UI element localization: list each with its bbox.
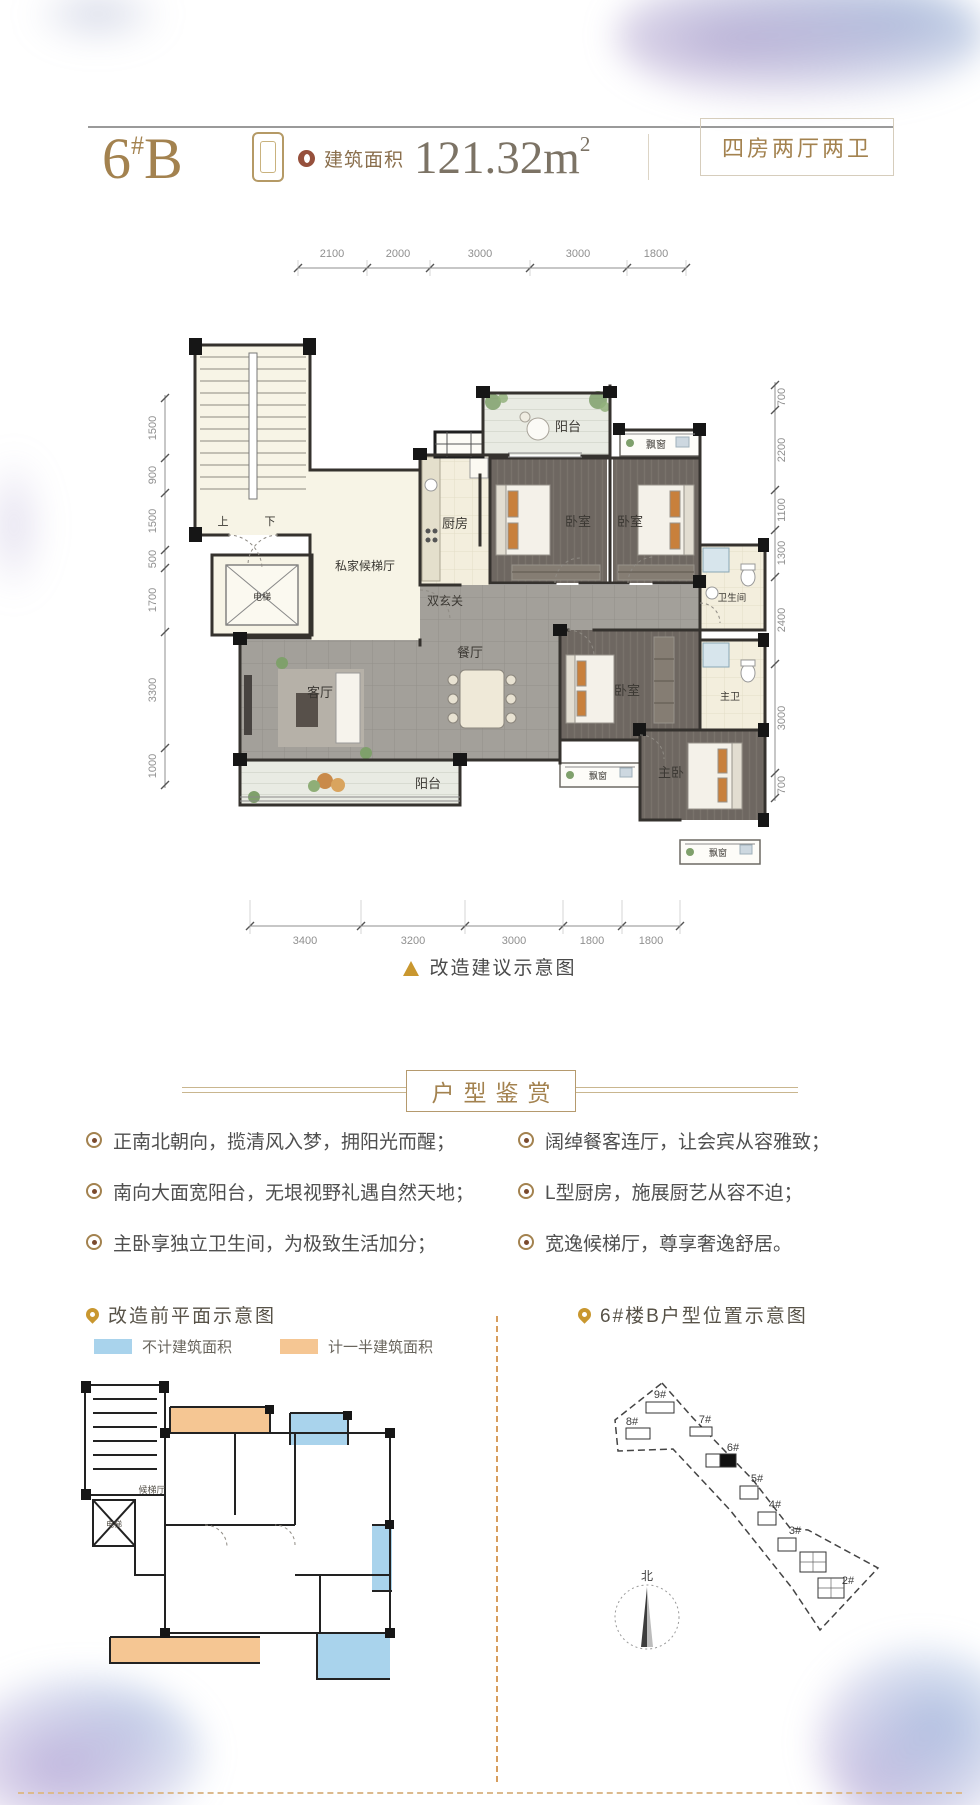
bullet-icon bbox=[518, 1183, 534, 1199]
dimension-left: 1500 900 1500 500 1700 3300 1000 bbox=[147, 394, 169, 789]
point-item: 阔绰餐客连厅，让会宾从容雅致； bbox=[518, 1128, 968, 1152]
bullet-icon bbox=[86, 1132, 102, 1148]
point-text: 南向大面宽阳台，无垠视野礼遇自然天地； bbox=[113, 1178, 474, 1205]
building-label: 9# bbox=[654, 1389, 667, 1401]
column-divider-dashed bbox=[496, 1316, 498, 1782]
point-text: 正南北朝向，揽清风入梦，拥阳光而醒； bbox=[113, 1127, 455, 1154]
dim-label: 2200 bbox=[776, 438, 788, 462]
point-item: 主卧享独立卫生间，为极致生活加分； bbox=[86, 1230, 496, 1254]
title-rule-right bbox=[574, 1087, 798, 1093]
legend-item: 计一半建筑面积 bbox=[280, 1336, 433, 1357]
dim-label: 2100 bbox=[320, 248, 344, 260]
point-item: 宽逸候梯厅，尊享奢逸舒居。 bbox=[518, 1230, 968, 1254]
dim-label: 1800 bbox=[580, 935, 604, 945]
pin-icon bbox=[575, 1305, 593, 1323]
location-map-header: 6#楼B户型位置示意图 bbox=[578, 1301, 808, 1328]
room-label-master-bath: 主卫 bbox=[720, 691, 740, 703]
unit-number: 6 bbox=[102, 126, 131, 191]
unit-hash: # bbox=[131, 131, 144, 160]
dimension-top: 2100 2000 3000 3000 1800 bbox=[294, 248, 690, 276]
room-label-elevator: 电梯 bbox=[253, 591, 271, 602]
watercolor-left-mid bbox=[0, 450, 46, 600]
point-item: L型厨房，施展厨艺从容不迫； bbox=[518, 1179, 968, 1203]
pin-icon bbox=[83, 1305, 101, 1323]
room-label-kitchen: 厨房 bbox=[442, 516, 468, 531]
location-map-drawing: 9# 8# 7# 6# 5# 4# 3# 2# 北 bbox=[500, 1340, 940, 1685]
unit-title: 6#B bbox=[102, 130, 183, 188]
room-label-private-hall: 私家候梯厅 bbox=[335, 558, 395, 573]
dim-label: 3000 bbox=[468, 248, 492, 260]
area-badge-icon bbox=[298, 150, 315, 167]
legend-item: 不计建筑面积 bbox=[94, 1336, 232, 1357]
room-label-bay-top: 飘窗 bbox=[646, 438, 666, 451]
watercolor-top-right bbox=[615, 0, 980, 105]
building-label: 5# bbox=[751, 1473, 764, 1485]
floorplan-drawing: 2100 2000 3000 3000 1800 1500 900 1500 5… bbox=[130, 245, 790, 945]
before-label-elevator: 电梯 bbox=[106, 1519, 122, 1529]
dim-label: 3400 bbox=[293, 935, 317, 945]
site-buildings bbox=[626, 1402, 844, 1598]
point-text: 宽逸候梯厅，尊享奢逸舒居。 bbox=[545, 1229, 792, 1256]
room-label-master-bedroom: 主卧 bbox=[658, 765, 684, 780]
caption-flame-icon bbox=[403, 961, 419, 976]
dim-label: 3200 bbox=[401, 935, 425, 945]
room-label-bedroom3: 卧室 bbox=[614, 683, 640, 698]
legend-swatch-orange bbox=[280, 1339, 318, 1354]
section-title: 户型鉴赏 bbox=[406, 1070, 576, 1112]
point-item: 南向大面宽阳台，无垠视野礼遇自然天地； bbox=[86, 1179, 496, 1203]
area-label: 建筑面积 bbox=[324, 145, 404, 172]
dim-label: 700 bbox=[776, 388, 788, 406]
points-right-column: 阔绰餐客连厅，让会宾从容雅致； L型厨房，施展厨艺从容不迫； 宽逸候梯厅，尊享奢… bbox=[518, 1128, 968, 1281]
before-color-areas bbox=[110, 1407, 392, 1679]
stair-label-down: 下 bbox=[265, 516, 276, 528]
dim-label: 900 bbox=[147, 466, 159, 484]
points-left-column: 正南北朝向，揽清风入梦，拥阳光而醒； 南向大面宽阳台，无垠视野礼遇自然天地； 主… bbox=[86, 1128, 496, 1281]
legend-label: 计一半建筑面积 bbox=[328, 1336, 433, 1357]
bullet-icon bbox=[86, 1183, 102, 1199]
building-label: 6# bbox=[727, 1442, 740, 1454]
dim-label: 2000 bbox=[386, 248, 410, 260]
room-label-bathroom: 卫生间 bbox=[718, 592, 747, 604]
dim-label: 500 bbox=[147, 550, 159, 568]
dim-label: 1300 bbox=[776, 541, 788, 565]
area-group: 建筑面积 121.32m2 bbox=[298, 128, 590, 188]
before-plan-drawing: 候梯厅 电梯 bbox=[55, 1375, 440, 1705]
dim-label: 1700 bbox=[147, 588, 159, 612]
before-door-arcs bbox=[205, 1525, 295, 1547]
legend-label: 不计建筑面积 bbox=[142, 1336, 232, 1357]
dim-label: 1500 bbox=[147, 416, 159, 440]
header-divider bbox=[648, 134, 649, 180]
dim-label: 3300 bbox=[147, 678, 159, 702]
unit-letter: B bbox=[144, 126, 183, 191]
flyer-page: 6#B 建筑面积 121.32m2 四房两厅两卫 bbox=[0, 0, 980, 1805]
before-plan-title: 改造前平面示意图 bbox=[108, 1301, 276, 1328]
dimension-right: 700 2200 1100 1300 2400 3000 700 bbox=[771, 381, 788, 802]
building-label: 8# bbox=[626, 1416, 639, 1428]
compass: 北 bbox=[615, 1569, 679, 1649]
point-text: 主卧享独立卫生间，为极致生活加分； bbox=[113, 1229, 436, 1256]
room-label-bay-mid: 飘窗 bbox=[589, 770, 607, 781]
location-map-title: 6#楼B户型位置示意图 bbox=[600, 1301, 808, 1328]
area-number: 121.32m bbox=[414, 132, 580, 184]
building-label: 3# bbox=[789, 1525, 802, 1537]
building-label: 7# bbox=[699, 1414, 712, 1426]
dimension-bottom: 3400 3200 3000 1800 1800 bbox=[246, 900, 684, 945]
footer-divider-dashed bbox=[18, 1792, 962, 1794]
dim-label: 1500 bbox=[147, 509, 159, 533]
bullet-icon bbox=[518, 1234, 534, 1250]
area-superscript: 2 bbox=[580, 132, 591, 156]
room-label-bay-master: 飘窗 bbox=[709, 847, 727, 858]
seal-icon bbox=[252, 132, 284, 182]
room-label-foyer: 双玄关 bbox=[427, 593, 463, 608]
dim-label: 1800 bbox=[644, 248, 668, 260]
plan-caption-text: 改造建议示意图 bbox=[429, 958, 576, 979]
room-label-bedroom2: 卧室 bbox=[617, 514, 643, 529]
dim-label: 1000 bbox=[147, 754, 159, 778]
room-label-bedroom1: 卧室 bbox=[565, 514, 591, 529]
room-label-living: 客厅 bbox=[307, 685, 333, 700]
point-text: 阔绰餐客连厅，让会宾从容雅致； bbox=[545, 1127, 830, 1154]
area-value: 121.32m2 bbox=[414, 134, 590, 182]
highlighted-unit-b bbox=[720, 1454, 736, 1467]
bullet-icon bbox=[86, 1234, 102, 1250]
dim-label: 3000 bbox=[502, 935, 526, 945]
section-appreciation-header: 户型鉴赏 bbox=[0, 1070, 980, 1112]
dim-label: 2400 bbox=[776, 608, 788, 632]
point-item: 正南北朝向，揽清风入梦，拥阳光而醒； bbox=[86, 1128, 496, 1152]
watercolor-top-left bbox=[28, 0, 168, 46]
title-rule-left bbox=[182, 1087, 406, 1093]
room-label-dining: 餐厅 bbox=[457, 645, 483, 660]
before-label-hall: 候梯厅 bbox=[138, 1484, 165, 1495]
private-hall-floor bbox=[310, 470, 420, 640]
layout-tag: 四房两厅两卫 bbox=[700, 118, 894, 176]
before-plan-header: 改造前平面示意图 bbox=[86, 1301, 276, 1328]
room-label-balcony-top: 阳台 bbox=[555, 419, 581, 434]
compass-north-label: 北 bbox=[641, 1569, 653, 1583]
dim-label: 1800 bbox=[639, 935, 663, 945]
stair-label-up: 上 bbox=[218, 515, 229, 528]
seal-icon-inner bbox=[260, 141, 276, 173]
room-label-balcony-bottom: 阳台 bbox=[415, 776, 441, 791]
point-text: L型厨房，施展厨艺从容不迫； bbox=[545, 1178, 803, 1205]
before-plan-legend: 不计建筑面积 计一半建筑面积 bbox=[94, 1336, 433, 1357]
building-label: 2# bbox=[842, 1575, 855, 1587]
dim-label: 1100 bbox=[776, 498, 788, 522]
plan-caption: 改造建议示意图 bbox=[0, 953, 980, 980]
building-label: 4# bbox=[769, 1499, 782, 1511]
bullet-icon bbox=[518, 1132, 534, 1148]
legend-swatch-blue bbox=[94, 1339, 132, 1354]
dim-label: 700 bbox=[776, 776, 788, 794]
dim-label: 3000 bbox=[776, 706, 788, 730]
dim-label: 3000 bbox=[566, 248, 590, 260]
